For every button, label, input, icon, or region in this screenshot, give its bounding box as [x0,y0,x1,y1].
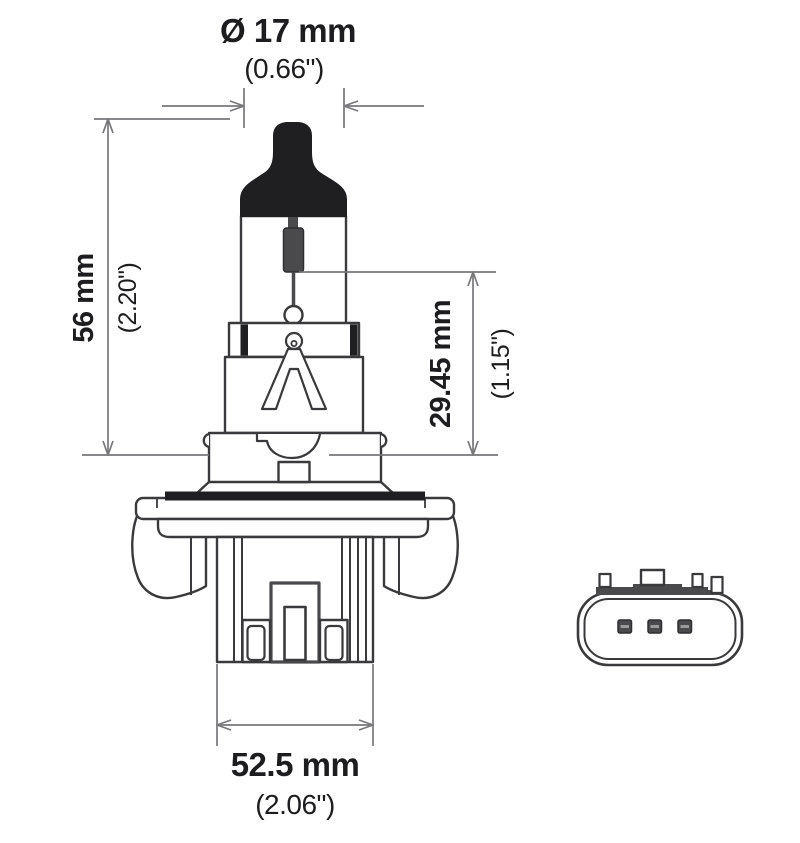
overall-length-inch-label: (2.20") [115,218,143,378]
mount-disc-black-band [165,492,425,501]
filament-stub [288,217,298,229]
connector-face-view [578,570,742,665]
base-width-mm-label: 52.5 mm [195,748,395,783]
diameter-inch-label: (0.66") [184,54,384,83]
connector-tab-4 [712,577,723,593]
key-flange-ear-right [381,434,386,447]
black-tip-cap [241,123,346,216]
disc-collar [158,519,428,537]
pin-2-highlight [651,625,660,628]
diameter-mm-label: Ø 17 mm [188,14,388,49]
key-flange-ear-left [204,434,209,447]
connector-slot [285,607,306,660]
pinch-dot [291,341,296,346]
upper-collar-black-left [241,325,249,356]
connector-tab-1 [600,574,611,587]
bulb-side-view [132,123,457,662]
product-dimension-diagram: Ø 17 mm (0.66") 56 mm (2.20") 29.45 mm (… [0,0,800,843]
stem-bead [285,306,303,324]
pin-3-highlight [681,625,690,628]
base-extension-lines [217,664,373,746]
bulb-line-art [0,0,800,843]
filament-to-flange-mm-label: 29.45 mm [426,274,456,454]
upper-collar-black-right [350,325,358,356]
filament-to-flange-inch-label: (1.15") [488,274,516,454]
filament-capsule [284,228,304,272]
connector-tab-3 [693,574,703,587]
connector-pins [618,620,692,633]
connector-tab-center [641,570,664,585]
pin-1-highlight [621,625,630,628]
flange-key-block [279,462,310,482]
base-width-inch-label: (2.06") [195,790,395,819]
flange-skirt [197,482,393,493]
overall-length-mm-label: 56 mm [69,218,99,378]
mount-disc [136,498,454,519]
